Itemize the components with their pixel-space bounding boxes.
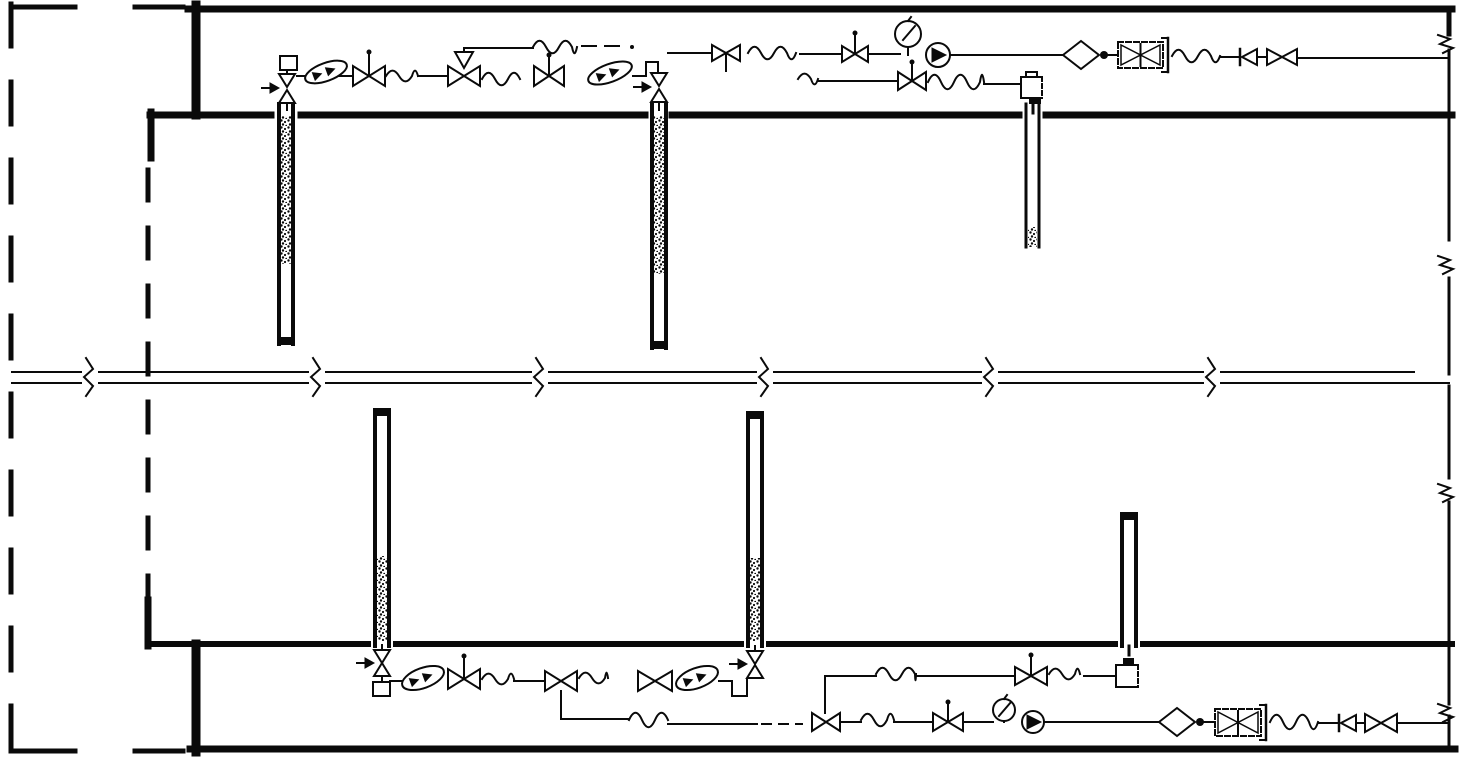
- pipe-dot: [630, 45, 634, 49]
- pressure-gauge: [895, 17, 921, 55]
- flex-coupling: [861, 714, 894, 727]
- pipe-break: [82, 358, 98, 396]
- pipe-break: [309, 358, 325, 396]
- schematic-diagram: [0, 0, 1466, 759]
- gate-valve: [812, 713, 840, 731]
- flow-arrow: [730, 659, 747, 669]
- pipe-break: [757, 358, 773, 396]
- border-break: [1438, 484, 1453, 502]
- well-column-1: [277, 104, 295, 345]
- well-cap-union: [280, 56, 297, 70]
- air-vent-valve: [279, 70, 295, 110]
- gate-valve: [712, 45, 740, 71]
- gate-valve: [353, 50, 385, 87]
- strainer-cartridge: [1118, 38, 1168, 72]
- check-valve: [1339, 715, 1356, 731]
- flow-meter: [1022, 711, 1044, 733]
- border-break: [1438, 35, 1453, 53]
- flex-coupling: [928, 75, 984, 89]
- strainer-cartridge: [1215, 705, 1266, 740]
- check-valve: [399, 661, 447, 695]
- flow-arrow: [262, 83, 279, 93]
- gate-valve: [545, 671, 577, 691]
- gate-valve: [1365, 714, 1397, 732]
- check-valve: [302, 56, 350, 88]
- well-column-3: [1026, 104, 1039, 247]
- border-break: [1438, 256, 1453, 274]
- flex-coupling: [876, 668, 916, 681]
- flex-coupling: [482, 73, 520, 86]
- flex-coupling: [1049, 669, 1080, 680]
- pipe-break: [1204, 358, 1220, 396]
- check-valve: [585, 57, 634, 90]
- flex-coupling: [1270, 715, 1318, 729]
- gate-valve: [1015, 653, 1047, 686]
- junction-dot: [1100, 51, 1108, 59]
- check-valve: [1240, 49, 1257, 65]
- pipe-break: [532, 358, 548, 396]
- pressure-gauge: [993, 695, 1015, 722]
- flex-coupling: [798, 74, 818, 85]
- gate-valve: [842, 31, 868, 63]
- pipe-jog: [719, 680, 747, 696]
- flex-coupling: [1172, 50, 1220, 63]
- flow-arrow: [634, 82, 651, 92]
- air-vent-valve: [747, 646, 763, 678]
- pipe-break: [982, 358, 998, 396]
- gate-valve: [933, 700, 963, 732]
- flow-meter: [926, 43, 950, 67]
- flow-arrow: [357, 658, 374, 668]
- flex-coupling: [386, 71, 418, 82]
- gate-valve: [1267, 49, 1297, 65]
- riser-valve: [448, 48, 480, 86]
- well-column-5: [746, 411, 764, 646]
- well-column-6: [1120, 512, 1138, 646]
- flex-coupling: [579, 673, 608, 684]
- well-column-4: [373, 408, 391, 646]
- filter: [1159, 708, 1195, 736]
- border-break: [1438, 704, 1453, 722]
- junction-dot: [1196, 718, 1204, 726]
- flex-coupling: [629, 713, 668, 727]
- flex-coupling: [533, 41, 577, 54]
- well-cap-union: [373, 682, 390, 696]
- gate-valve: [448, 654, 480, 690]
- branch-pipe: [561, 691, 629, 719]
- gate-valve: [638, 671, 672, 691]
- well-seal-box: [1116, 646, 1138, 687]
- well-column-2: [650, 104, 668, 349]
- air-vent-valve: [374, 645, 390, 682]
- diagram-canvas: [0, 0, 1466, 759]
- flex-coupling: [482, 674, 514, 685]
- flex-coupling: [748, 47, 796, 60]
- check-valve: [673, 661, 721, 695]
- gate-valve: [898, 60, 926, 91]
- filter: [1063, 41, 1099, 69]
- gate-valve: [534, 53, 564, 87]
